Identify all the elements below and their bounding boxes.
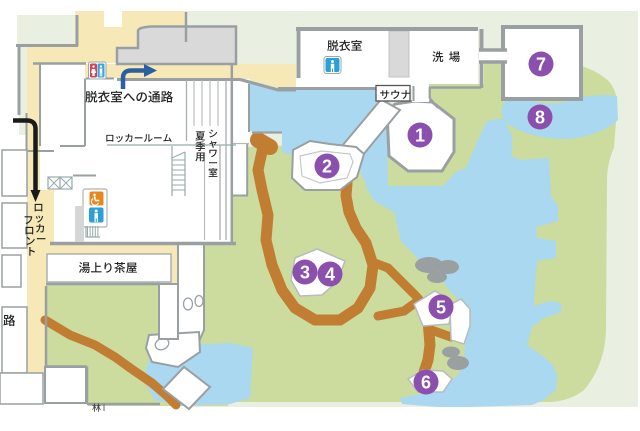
svg-text:3: 3 xyxy=(300,263,310,283)
svg-text:6: 6 xyxy=(421,373,431,393)
svg-text:5: 5 xyxy=(436,298,446,318)
svg-text:8: 8 xyxy=(535,108,545,128)
svg-text:4: 4 xyxy=(325,265,335,285)
svg-text:1: 1 xyxy=(415,126,425,146)
svg-text:2: 2 xyxy=(322,157,332,177)
svg-text:7: 7 xyxy=(536,55,546,75)
